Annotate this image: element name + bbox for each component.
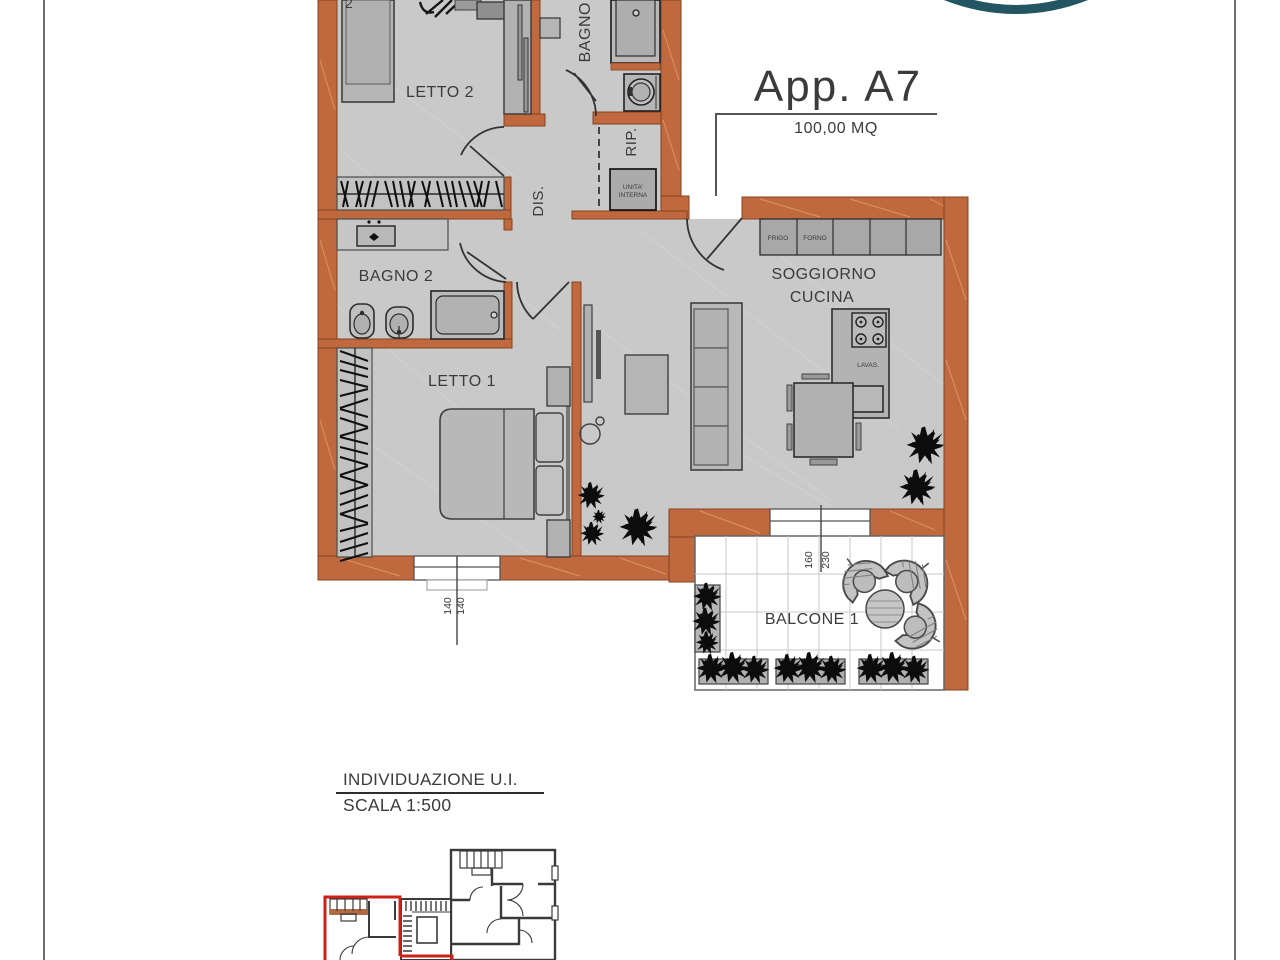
svg-text:LETTO 1: LETTO 1: [428, 373, 496, 390]
svg-text:INTERNA: INTERNA: [619, 192, 648, 199]
svg-text:BALCONE 1: BALCONE 1: [765, 611, 859, 628]
svg-text:SCALA 1:500: SCALA 1:500: [343, 795, 451, 815]
svg-text:2: 2: [345, 0, 353, 11]
svg-text:DIS.: DIS.: [530, 185, 547, 216]
svg-text:FORNO: FORNO: [803, 235, 826, 242]
svg-text:230: 230: [820, 551, 832, 569]
svg-text:140: 140: [442, 597, 454, 615]
svg-text:100,00 MQ: 100,00 MQ: [794, 120, 878, 137]
svg-text:RIP.: RIP.: [623, 127, 640, 156]
svg-text:UNITA': UNITA': [623, 184, 643, 191]
svg-text:140: 140: [455, 597, 467, 615]
svg-text:SOGGIORNO: SOGGIORNO: [772, 266, 877, 283]
svg-text:160: 160: [803, 551, 815, 569]
svg-text:LETTO 2: LETTO 2: [406, 84, 474, 101]
svg-text:App. A7: App. A7: [754, 62, 922, 111]
svg-text:BAGNO 1: BAGNO 1: [577, 0, 594, 62]
svg-text:CUCINA: CUCINA: [790, 289, 854, 306]
svg-text:BAGNO 2: BAGNO 2: [359, 268, 434, 285]
svg-text:INDIVIDUAZIONE U.I.: INDIVIDUAZIONE U.I.: [343, 770, 518, 789]
svg-text:LAVAS.: LAVAS.: [857, 362, 879, 369]
svg-text:FRIGO: FRIGO: [768, 235, 789, 242]
